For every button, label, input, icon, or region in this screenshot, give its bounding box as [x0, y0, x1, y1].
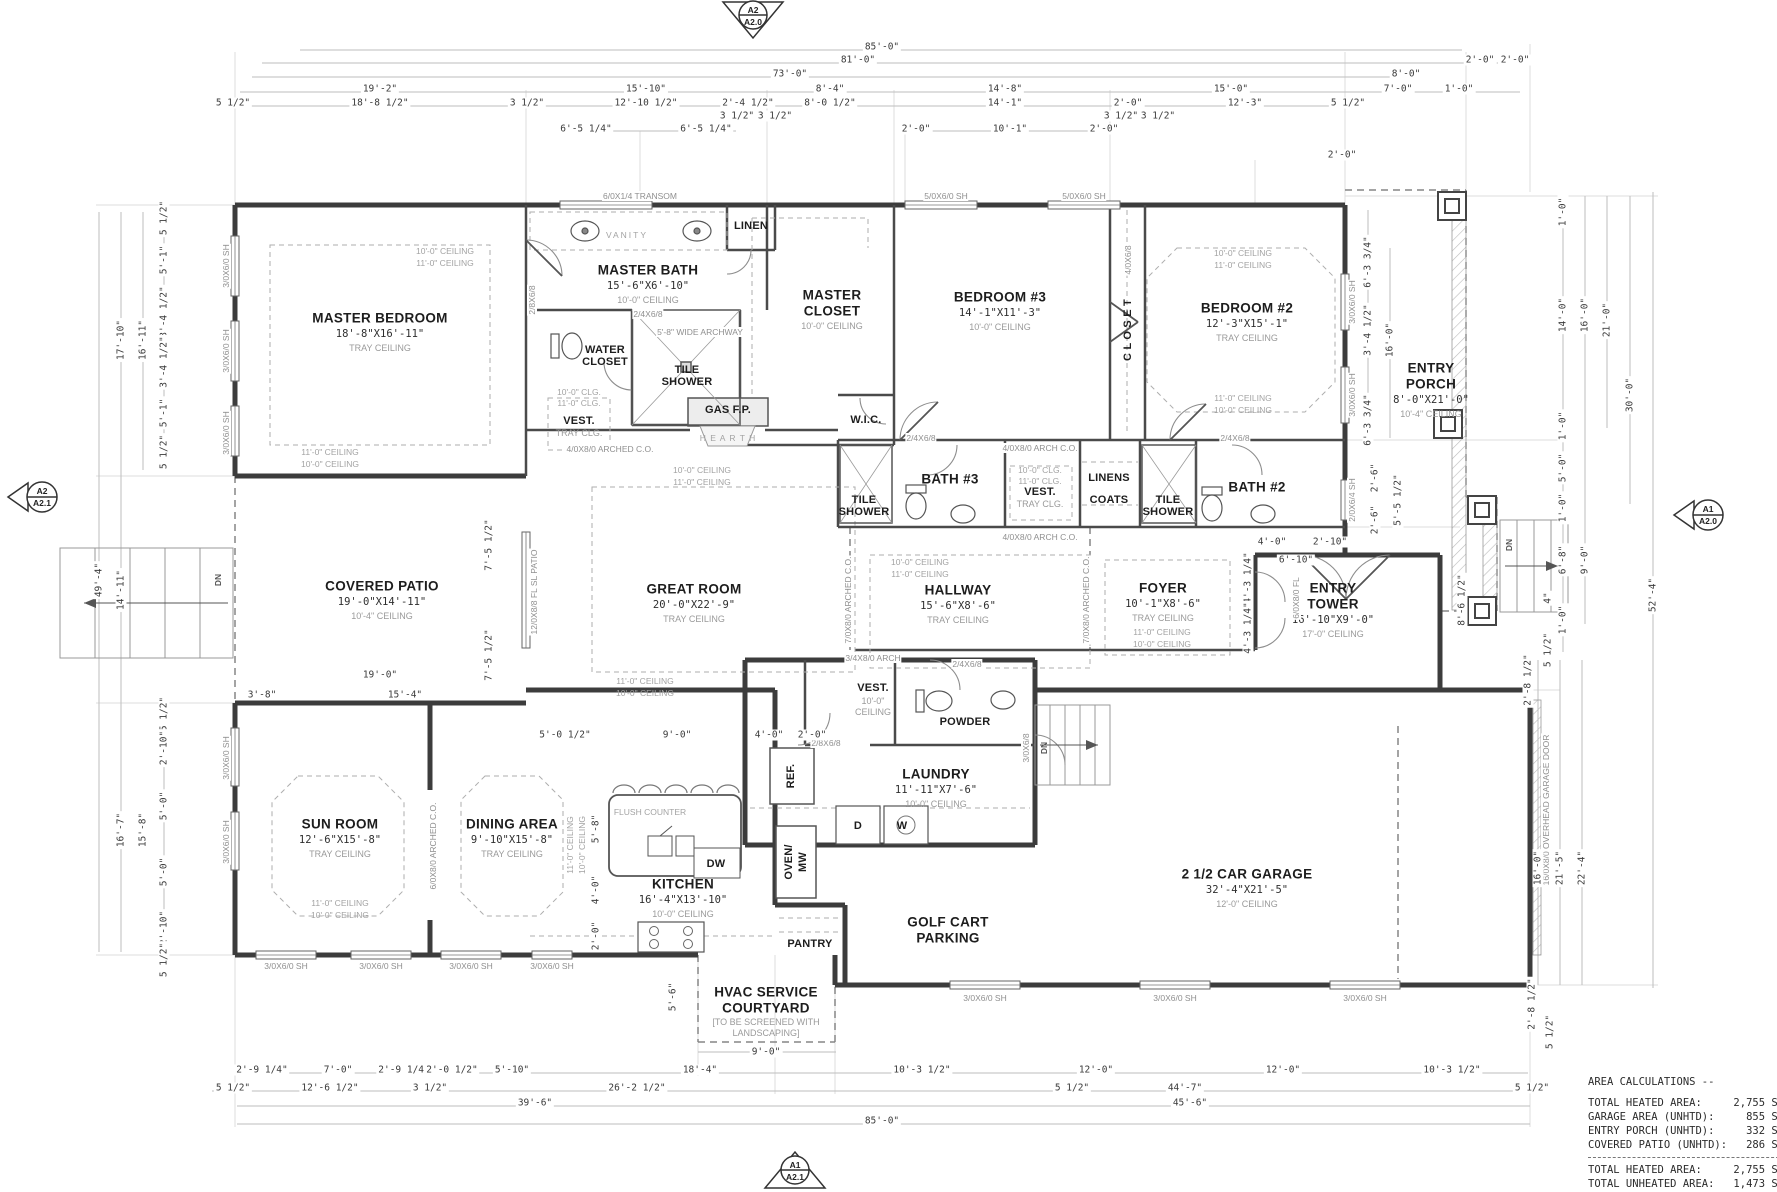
dim-label: 30'-0" [1625, 376, 1636, 414]
area-calc-label: TOTAL HEATED AREA: [1588, 1096, 1702, 1110]
dim-label: 18'-4" [681, 1065, 719, 1076]
dim-label: 1'-0" [1443, 84, 1476, 95]
room-ceiling-hallway: TRAY CEILING [927, 615, 989, 625]
room-label-golf-cart: GOLF CART [907, 915, 988, 930]
room-size-entry-porch: 8'-0"X21'-0" [1393, 394, 1469, 406]
ceiling-note: 11'-0" CEILING [616, 676, 673, 686]
flush-counter-label: FLUSH COUNTER [614, 807, 686, 817]
dim-label: 3 1/2" [756, 111, 794, 122]
room-label-bedroom3: BEDROOM #3 [954, 290, 1046, 305]
room-ceiling-bedroom2: TRAY CEILING [1216, 333, 1278, 343]
opening-label-archway: 5'-8" WIDE ARCHWAY [656, 327, 744, 337]
ceiling-note: 10'-0" CEILING [301, 459, 359, 469]
opening-label: 2/4X6/8 [905, 433, 936, 443]
dim-label: 2'-6" [1370, 504, 1381, 537]
patio-stairs [60, 548, 233, 658]
dim-label: 9'-0" [1580, 544, 1591, 577]
marker-top-sheet: A2.0 [744, 17, 762, 27]
opening-label: 3/0X6/0 SH [962, 993, 1007, 1003]
opening-label: 3/0X6/0 SH [263, 961, 308, 971]
marker-right-code: A1 [1703, 504, 1714, 514]
dim-label: 85'-0" [863, 1116, 901, 1127]
room-label-bath3: BATH #3 [921, 472, 978, 487]
mid-vest-label: VEST. [1024, 486, 1056, 498]
opening-label: 3/0X6/0 SH [221, 410, 231, 455]
floor-plan-drawing [0, 0, 1777, 1192]
room-size-dining: 9'-10"X15'-8" [471, 834, 553, 846]
opening-label-patio-door: 12/0X8/8 FL SL PATIO [529, 548, 539, 635]
room-ceiling-master-bath: 10'-0" CEILING [617, 295, 678, 305]
ceiling-note: 10'-0" CEILING [416, 246, 474, 256]
opening-label: 3/0X6/0 SH [529, 961, 574, 971]
ceiling-note: 10'-0" CEILING [891, 557, 949, 567]
dim-label: 5 1/2" [1513, 1083, 1551, 1094]
opening-label: 3/0X6/8 [1021, 732, 1031, 763]
dim-label: 4'-3 1/4" [1243, 550, 1254, 605]
dim-label: 2'-0" [1112, 98, 1145, 109]
room-label-golf-cart-2: PARKING [916, 931, 979, 946]
dim-label: 5 1/2" [159, 199, 170, 237]
dim-label: 15'-0" [1212, 84, 1250, 95]
dim-label: 21'-0" [1602, 301, 1613, 339]
room-size-sun-room: 12'-6"X15'-8" [299, 834, 381, 846]
dim-label: 3 1/2" [1102, 111, 1140, 122]
room-ceiling-entry-tower: 17'-0" CEILING [1302, 629, 1363, 639]
dim-label: 14'-11" [116, 568, 127, 612]
dim-label: 5'-0" [1558, 452, 1569, 485]
dim-label: 2'-0" [1464, 55, 1497, 66]
opening-label: 3/0X6/0 SH [221, 735, 231, 780]
ceiling-note: 11'-0" CEILING [1214, 260, 1271, 270]
dim-label: 10'-3 1/2" [1421, 1065, 1482, 1076]
floor-plan-sheet: MASTER BEDROOM 18'-8"X16'-11" TRAY CEILI… [0, 0, 1777, 1192]
dim-label: 5'-6" [668, 981, 679, 1014]
dim-label: 14'-8" [986, 84, 1024, 95]
dim-label: 2'-0" [1088, 124, 1121, 135]
oven-mw-box [776, 826, 816, 898]
area-calc-label: TOTAL HEATED AREA: [1588, 1163, 1702, 1177]
room-label-master-bath: MASTER BATH [598, 263, 699, 278]
bath2-shower-label-1: TILE [1156, 494, 1181, 506]
linen-label: LINEN [734, 220, 768, 232]
room-ceiling-entry-porch: 10'-4" CEILING [1400, 409, 1461, 419]
dim-label: 6'-8" [1558, 544, 1569, 577]
dim-label: 17'-10" [116, 318, 127, 362]
dim-label: 5 1/2" [159, 433, 170, 471]
room-size-kitchen: 16'-4"X13'-10" [639, 894, 728, 906]
dim-label: 19'-0" [361, 670, 399, 681]
patio-dn-label: DN [213, 574, 223, 586]
ceiling-note: 11'-0" CEILING [1214, 393, 1271, 403]
ceiling-note: 10'-0" CEILING [1214, 405, 1272, 415]
dim-label: 3'-4 1/2" [1363, 302, 1374, 357]
dim-label: 7'-5 1/2" [484, 517, 495, 572]
dim-label: 4'-0" [591, 874, 602, 907]
dim-label: 5'-0 1/2" [537, 730, 592, 741]
ceiling-note: 10'-0" CLG. [1018, 465, 1062, 475]
dim-label: 10'-1" [991, 124, 1029, 135]
room-ceiling-garage: 12'-0" CEILING [1216, 899, 1277, 909]
ceiling-note: 10'-0" CEILING [1214, 248, 1272, 258]
room-size-great-room: 20'-0"X22'-9" [653, 599, 735, 611]
pantry-label: PANTRY [787, 938, 832, 950]
room-label-foyer: FOYER [1139, 581, 1187, 596]
area-calc-label: COVERED PATIO (UNHTD): [1588, 1138, 1727, 1152]
master-shower-label-1: TILE [675, 364, 700, 376]
area-calc-value: 2,755 SF [1733, 1096, 1777, 1110]
dim-label: 12'-0" [1264, 1065, 1302, 1076]
coats-label: COATS [1090, 494, 1129, 506]
mid-vest-clg-label: TRAY CLG. [1017, 499, 1064, 509]
island-stools [613, 785, 739, 793]
area-calc-value: 286 SF [1746, 1138, 1777, 1152]
area-calc-row: GARAGE AREA (UNHTD): 855 SF [1588, 1110, 1777, 1124]
dim-label: 2'-4 1/2" [720, 98, 775, 109]
opening-label: 4/0X8/0 ARCHED C.O. [566, 444, 655, 454]
dim-label: 1'-0" [1558, 196, 1569, 229]
dim-label: 2'-10" [159, 729, 170, 767]
dim-label: 5 1/2" [214, 1083, 252, 1094]
dim-label: 26'-2 1/2" [606, 1083, 667, 1094]
ceiling-note: 11'-0" CEILING [311, 898, 368, 908]
room-ceiling-kitchen: 10'-0" CEILING [652, 909, 713, 919]
room-size-foyer: 10'-1"X8'-6" [1125, 598, 1201, 610]
dim-label: 5'-0" [159, 856, 170, 889]
dim-label: 49'-4" [94, 561, 105, 599]
room-label-sun-room: SUN ROOM [302, 817, 379, 832]
ref-label: REF. [785, 764, 797, 789]
dim-label: 6'-3 3/4" [1363, 234, 1374, 289]
dim-label: 8'-6 1/2" [1457, 572, 1468, 627]
dim-label: 5 1/2" [214, 98, 252, 109]
dim-label: 6'-10" [1277, 555, 1315, 566]
dim-label: 3 1/2" [508, 98, 546, 109]
opening-label: 6/0X1/4 TRANSOM [602, 191, 678, 201]
room-ceiling-laundry: 10'-0" CEILING [905, 799, 966, 809]
dim-label: 16'-11" [138, 318, 149, 362]
dim-label: 16'-7" [116, 811, 127, 849]
room-label-dining: DINING AREA [466, 817, 558, 832]
opening-label: 3/0X6/0 SH [1152, 993, 1197, 1003]
opening-label: 3/0X6/0 SH [221, 243, 231, 288]
water-closet-label-1: WATER [585, 344, 625, 356]
opening-label: 4/0X6/8 [1123, 244, 1133, 275]
dim-label: 5 1/2" [1545, 1013, 1556, 1051]
dim-label: 2'-6" [1370, 462, 1381, 495]
dim-label: 2'-10" [1311, 537, 1349, 548]
dim-label: 85'-0" [863, 42, 901, 53]
room-ceiling-sun-room: TRAY CEILING [309, 849, 371, 859]
dim-label: 7'-0" [322, 1065, 355, 1076]
dim-label: 2'-0" [591, 920, 602, 953]
opening-label: 2/4X6/8 [951, 659, 982, 669]
bath2-shower-label-2: SHOWER [1143, 506, 1194, 518]
area-calc-label: GARAGE AREA (UNHTD): [1588, 1110, 1714, 1124]
dim-label: 2'-0" [1326, 150, 1359, 161]
master-vest-clg-label: TRAY CLG. [556, 428, 603, 438]
dw-label: DW [707, 858, 726, 870]
opening-label: 2/4X6/8 [1219, 433, 1250, 443]
dim-label: 5'-1" [159, 397, 170, 430]
dim-label: 4" [1543, 590, 1554, 605]
opening-label: 7/0X8/0 ARCHED C.O. [843, 556, 853, 645]
opening-label: 3/0X6/0 SH [1347, 372, 1357, 417]
room-ceiling-dining: TRAY CEILING [481, 849, 543, 859]
opening-label: 4/0X8/0 ARCH C.O. [1001, 532, 1078, 542]
dim-label: 73'-0" [771, 69, 809, 80]
room-label-hallway: HALLWAY [925, 583, 992, 598]
room-label-bedroom2: BEDROOM #2 [1201, 301, 1293, 316]
dim-label: 1'-0" [1558, 492, 1569, 525]
dim-label: 5 1/2" [159, 695, 170, 733]
dim-label: 2'-8 1/2" [1527, 976, 1538, 1031]
dim-label: 3'-8" [246, 690, 279, 701]
ceiling-note: 11'-0" CLG. [1018, 476, 1061, 486]
gas-fp-label: GAS F.P. [705, 404, 751, 416]
dim-label: 4'-0" [753, 730, 786, 741]
dim-label: 14'-1" [986, 98, 1024, 109]
dim-label: 6'-5 1/4" [558, 124, 613, 135]
bath3-shower-label-1: TILE [852, 494, 877, 506]
ceiling-note: 10'-0" CEILING [673, 465, 731, 475]
room-ceiling-master-bedroom: TRAY CEILING [349, 343, 411, 353]
dim-label: 3'-4 1/2" [159, 284, 170, 339]
room-label-great-room: GREAT ROOM [647, 582, 742, 597]
room-size-master-bath: 15'-6"X6'-10" [607, 280, 689, 292]
opening-label: 3/0X6/0 SH [1342, 993, 1387, 1003]
opening-label: 5/0X6/0 SH [1061, 191, 1106, 201]
room-label-kitchen: KITCHEN [652, 877, 714, 892]
room-label-entry-porch-2: PORCH [1406, 377, 1456, 392]
ceiling-note: 11'-0" CEILING [891, 569, 948, 579]
dim-label: 16'-0" [1385, 321, 1396, 359]
room-label-master-closet: MASTER [803, 288, 862, 303]
dim-label: 19'-2" [361, 84, 399, 95]
dim-label: 8'-0 1/2" [802, 98, 857, 109]
dim-label: 12'-6 1/2" [299, 1083, 360, 1094]
room-label-covered-patio: COVERED PATIO [325, 579, 439, 594]
opening-label: 2/0X6/4 SH [1347, 477, 1357, 522]
room-ceiling-master-closet: 10'-0" CEILING [801, 321, 862, 331]
bedroom3-closet-label: C L O S E T [1122, 299, 1134, 361]
room-size-bedroom3: 14'-1"X11'-3" [959, 307, 1041, 319]
marker-top-code: A2 [748, 5, 759, 15]
marker-right-sheet: A2.0 [1699, 516, 1717, 526]
dim-label: 9'-0" [750, 1047, 783, 1058]
water-closet-label-2: CLOSET [582, 356, 628, 368]
oven-label: OVEN/ [783, 844, 795, 879]
opening-label: 5/0X6/0 SH [923, 191, 968, 201]
area-calc-value: 855 SF [1746, 1110, 1777, 1124]
opening-label-front-door: 6/0X8/0 FL [1291, 576, 1301, 620]
washer-label: W [897, 820, 908, 832]
room-label-bath2: BATH #2 [1228, 480, 1285, 495]
opening-label: 2/8X6/8 [527, 284, 537, 315]
dim-label: 8'-0" [1390, 69, 1423, 80]
dim-label: 3 1/2" [718, 111, 756, 122]
room-note-hvac-1: [TO BE SCREENED WITH [712, 1017, 819, 1027]
dim-label: 15'-4" [386, 690, 424, 701]
room-size-master-bedroom: 18'-8"X16'-11" [336, 328, 425, 340]
dim-label: 3 1/2" [1139, 111, 1177, 122]
room-ceiling-covered-patio: 10'-4" CEILING [351, 611, 412, 621]
vanity-label: VANITY [606, 230, 648, 240]
area-calc-row: ENTRY PORCH (UNHTD): 332 SF [1588, 1124, 1777, 1138]
area-calc-label: TOTAL UNHEATED AREA: [1588, 1177, 1714, 1191]
dim-label: 5 1/2" [1053, 1083, 1091, 1094]
entry-dn-label: DN [1504, 539, 1514, 551]
room-label-hvac: HVAC SERVICE [714, 985, 818, 1000]
dim-label: 7'-5 1/2" [484, 627, 495, 682]
dim-label: 7'-0" [1382, 84, 1415, 95]
dim-label: 8'-4" [814, 84, 847, 95]
dim-label: 2'-8 1/2" [1523, 652, 1534, 707]
room-ceiling-foyer: TRAY CEILING [1132, 613, 1194, 623]
dim-label: 10'-3 1/2" [891, 1065, 952, 1076]
dim-label: 2'-0 1/2" [424, 1065, 479, 1076]
dim-label: 81'-0" [839, 55, 877, 66]
dim-label: 12'-3" [1226, 98, 1264, 109]
dim-label: 5'-10" [493, 1065, 531, 1076]
ceiling-note: 10'-0" CLG. [557, 387, 601, 397]
range-box [638, 922, 704, 952]
ceiling-note: 10'-0" CEILING [311, 910, 369, 920]
opening-label: 3/0X6/0 SH [448, 961, 493, 971]
room-label-hvac-2: COURTYARD [722, 1001, 810, 1016]
linens-label: LINENS [1088, 472, 1130, 484]
marker-bottom-code: A1 [790, 1160, 801, 1170]
dim-label: 12'-0" [1077, 1065, 1115, 1076]
area-calc-value: 1,473 SF [1733, 1177, 1777, 1191]
dim-label: 6'-3 3/4" [1363, 392, 1374, 447]
room-label-entry-tower-2: TOWER [1307, 597, 1359, 612]
room-size-garage: 32'-4"X21'-5" [1206, 884, 1288, 896]
area-calc-label: ENTRY PORCH (UNHTD): [1588, 1124, 1714, 1138]
area-calc-total-row: TOTAL UNHEATED AREA: 1,473 SF [1588, 1177, 1777, 1191]
opening-label: 3/0X6/0 SH [358, 961, 403, 971]
dim-label: 52'-4" [1648, 576, 1659, 614]
room-size-bedroom2: 12'-3"X15'-1" [1206, 318, 1288, 330]
room-label-master-closet-2: CLOSET [804, 304, 861, 319]
dim-label: 16'-0" [1533, 849, 1544, 887]
area-calculations-table: AREA CALCULATIONS -- TOTAL HEATED AREA: … [1588, 1076, 1777, 1192]
room-size-covered-patio: 19'-0"X14'-11" [338, 596, 427, 608]
ceiling-note: 11'-0" CEILING [1133, 627, 1190, 637]
room-label-vest-rear: VEST. [857, 682, 889, 694]
master-shower-label-2: SHOWER [662, 376, 713, 388]
opening-label: 2/4X6/8 [632, 309, 663, 319]
ceiling-note: 11'-0" CEILING [565, 816, 575, 873]
dim-label: 2'-0" [1499, 55, 1532, 66]
room-ceiling-great-room: TRAY CEILING [663, 614, 725, 624]
wic-label: W.I.C. [850, 414, 881, 426]
laundry-dn-label: DN [1039, 742, 1049, 754]
ceiling-note: 11'-0" CLG. [557, 398, 600, 408]
ceiling-note: 10'-0" CEILING [616, 688, 674, 698]
dim-label: 5'-1" [159, 244, 170, 277]
area-calc-value: 2,755 SF [1733, 1163, 1777, 1177]
room-ceiling-vest-rear: 10'-0" [862, 696, 885, 706]
dim-label: 39'-6" [516, 1098, 554, 1109]
opening-label: 3/0X6/0 SH [221, 819, 231, 864]
area-calc-row: TOTAL HEATED AREA: 2,755 SF [1588, 1096, 1777, 1110]
dim-label: 5 1/2" [159, 941, 170, 979]
dim-label: 45'-6" [1171, 1098, 1209, 1109]
room-ceiling-bedroom3: 10'-0" CEILING [969, 322, 1030, 332]
room-ceiling-vest-rear-2: CEILING [855, 707, 891, 717]
area-calc-title: AREA CALCULATIONS -- [1588, 1076, 1777, 1088]
powder-label: POWDER [940, 716, 991, 728]
room-label-entry-tower: ENTRY [1310, 581, 1357, 596]
room-size-hallway: 15'-6"X8'-6" [920, 600, 996, 612]
master-vest-label: VEST. [563, 415, 595, 427]
dim-label: 21'-5" [1555, 849, 1566, 887]
dim-label: 5 1/2" [1543, 631, 1554, 669]
ceiling-note: 10'-0" CEILING [577, 816, 587, 874]
marker-left-sheet: A2.1 [33, 498, 51, 508]
room-note-hvac-2: LANDSCAPING] [732, 1028, 799, 1038]
dim-label: 6'-5 1/4" [678, 124, 733, 135]
dim-label: 5'-8" [591, 813, 602, 846]
opening-label: 3/0X6/0 SH [221, 328, 231, 373]
room-label-entry-porch: ENTRY [1408, 361, 1455, 376]
dim-label: 2'-0" [900, 124, 933, 135]
marker-left-code: A2 [37, 486, 48, 496]
room-size-laundry: 11'-11"X7'-6" [895, 784, 977, 796]
area-calc-divider [1588, 1157, 1777, 1158]
dim-label: 14'-0" [1558, 296, 1569, 334]
garage-door-hatch [1533, 700, 1541, 955]
area-calc-row: COVERED PATIO (UNHTD): 286 SF [1588, 1138, 1777, 1152]
dim-label: 16'-0" [1580, 296, 1591, 334]
bath3-shower-label-2: SHOWER [839, 506, 890, 518]
room-size-entry-tower: 16'-10"X9'-0" [1292, 614, 1374, 626]
ceiling-note: 11'-0" CEILING [673, 477, 730, 487]
ceiling-note: 11'-0" CEILING [301, 447, 358, 457]
ceiling-note: 10'-0" CEILING [1133, 639, 1191, 649]
area-calc-value: 332 SF [1746, 1124, 1777, 1138]
opening-label: 7/0X8/0 ARCHED C.O. [1081, 556, 1091, 645]
dim-label: 22'-4" [1577, 849, 1588, 887]
marker-bottom-sheet: A2.1 [786, 1172, 804, 1182]
dim-label: 2'-9 1/4" [234, 1065, 289, 1076]
dim-label: 1'-0" [1558, 604, 1569, 637]
dim-label: 2'-0" [796, 730, 829, 741]
dim-label: 5'-0" [159, 790, 170, 823]
room-label-master-bedroom: MASTER BEDROOM [312, 311, 447, 326]
dim-label: 1'-0" [1558, 410, 1569, 443]
dim-label: 4'-0" [1256, 537, 1289, 548]
dim-label: 4'-3 1/4" [1243, 600, 1254, 655]
opening-label: 4/0X8/0 ARCH C.O. [1001, 443, 1078, 453]
room-label-garage: 2 1/2 CAR GARAGE [1182, 867, 1313, 882]
dim-label: 9'-0" [661, 730, 694, 741]
mw-label: MW [797, 852, 809, 872]
area-calc-total-row: TOTAL HEATED AREA: 2,755 SF [1588, 1163, 1777, 1177]
dryer-label: D [854, 820, 862, 832]
room-label-laundry: LAUNDRY [902, 767, 970, 782]
ceiling-note: 11'-0" CEILING [416, 258, 473, 268]
dim-label: 18'-8 1/2" [349, 98, 410, 109]
dim-label: 15'-10" [624, 84, 668, 95]
opening-label: 3/4X8/0 ARCH [844, 653, 901, 663]
dim-label: 15'-8" [138, 811, 149, 849]
dim-label: 3 1/2" [411, 1083, 449, 1094]
dim-label: 12'-10 1/2" [613, 98, 680, 109]
dim-label: 5'-5 1/2" [1393, 472, 1404, 527]
dim-label: 44'-7" [1166, 1083, 1204, 1094]
dim-label: 5 1/2" [1329, 98, 1367, 109]
